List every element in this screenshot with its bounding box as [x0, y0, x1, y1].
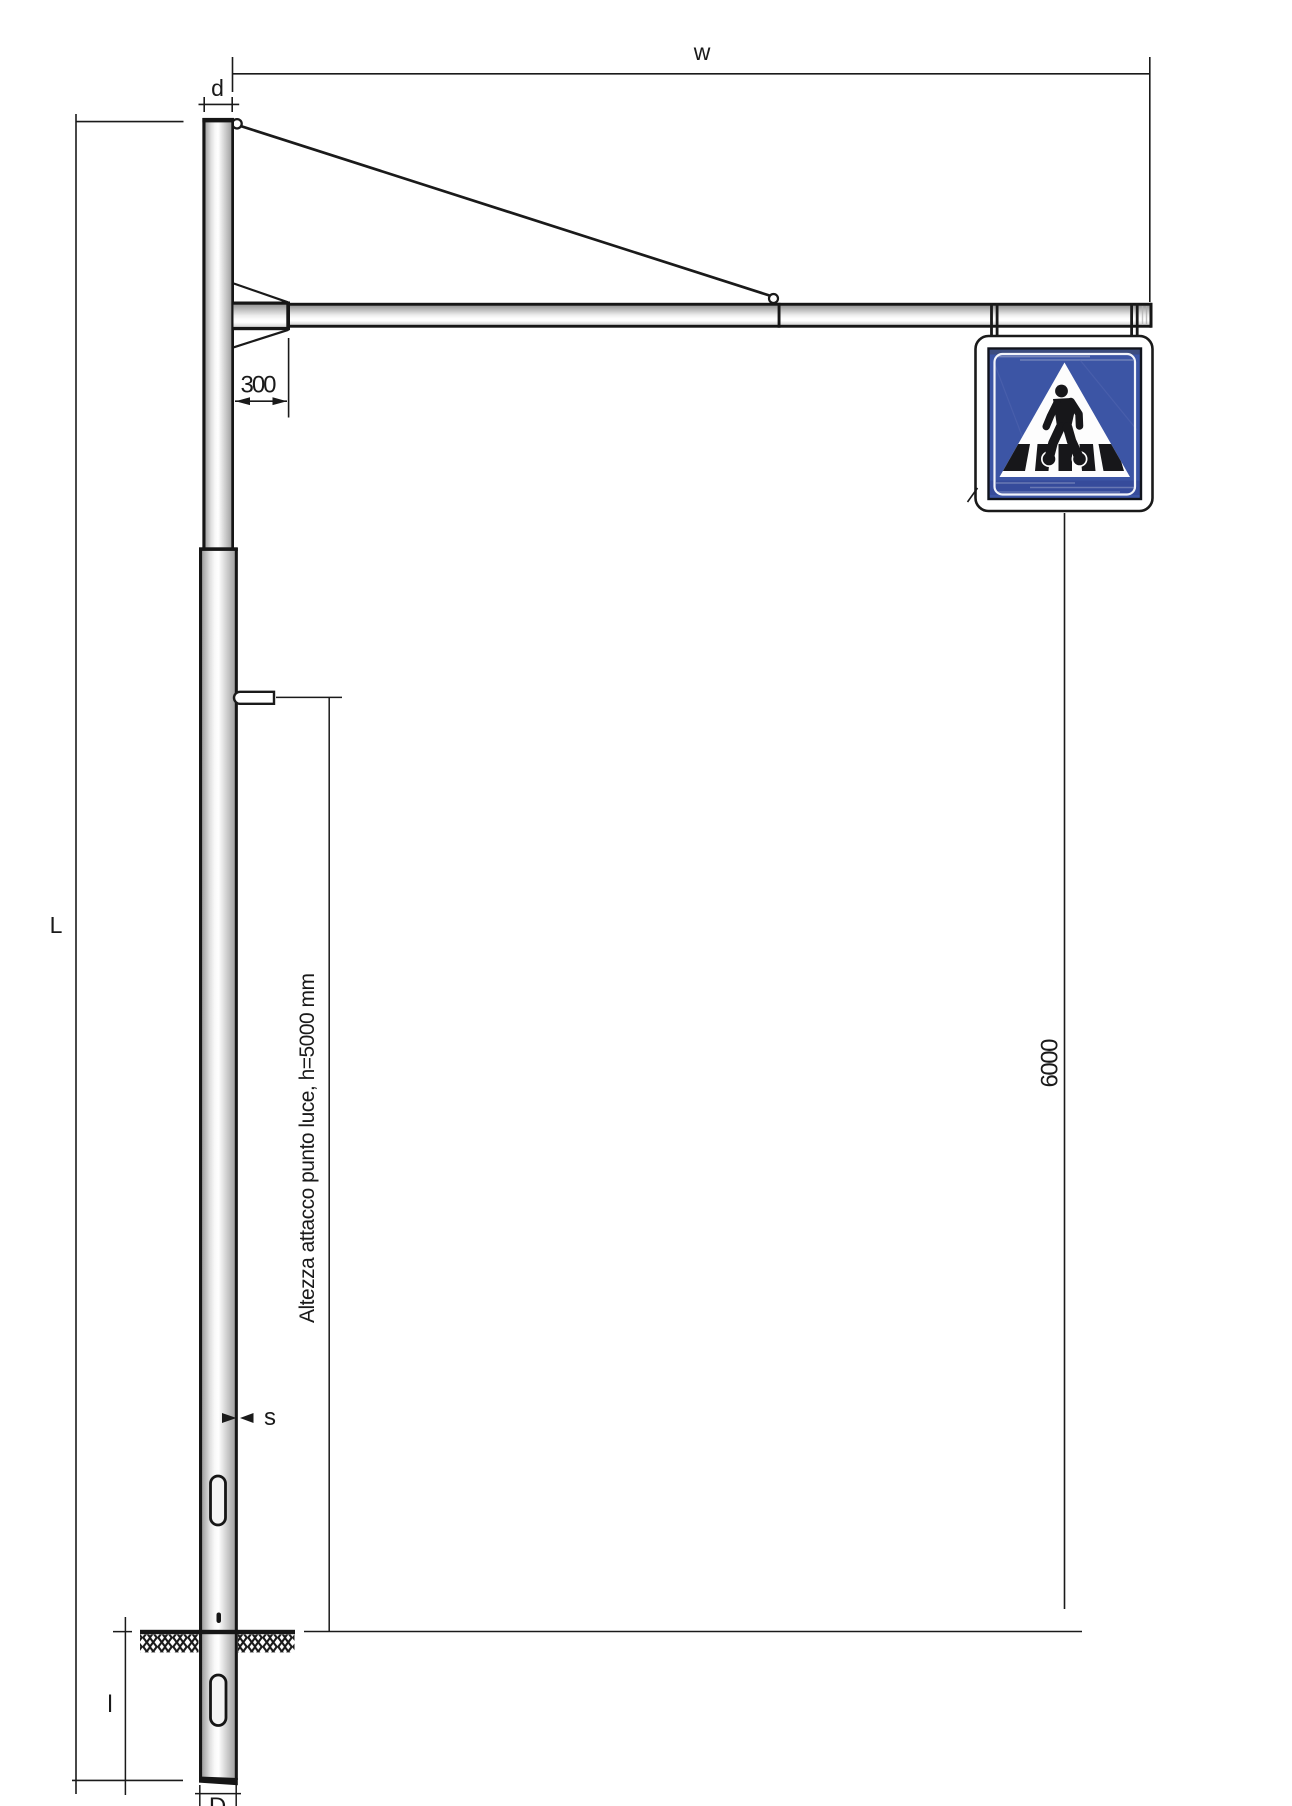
svg-text:l: l: [107, 1691, 112, 1718]
svg-text:L: L: [50, 912, 63, 938]
svg-text:D: D: [209, 1793, 226, 1806]
svg-text:d: d: [211, 75, 224, 101]
svg-text:Altezza attacco punto luce, h=: Altezza attacco punto luce, h=5000 mm: [296, 973, 319, 1323]
svg-text:w: w: [693, 39, 711, 65]
svg-text:300: 300: [241, 372, 277, 399]
svg-text:s: s: [264, 1404, 276, 1431]
svg-text:6000: 6000: [1037, 1039, 1064, 1088]
